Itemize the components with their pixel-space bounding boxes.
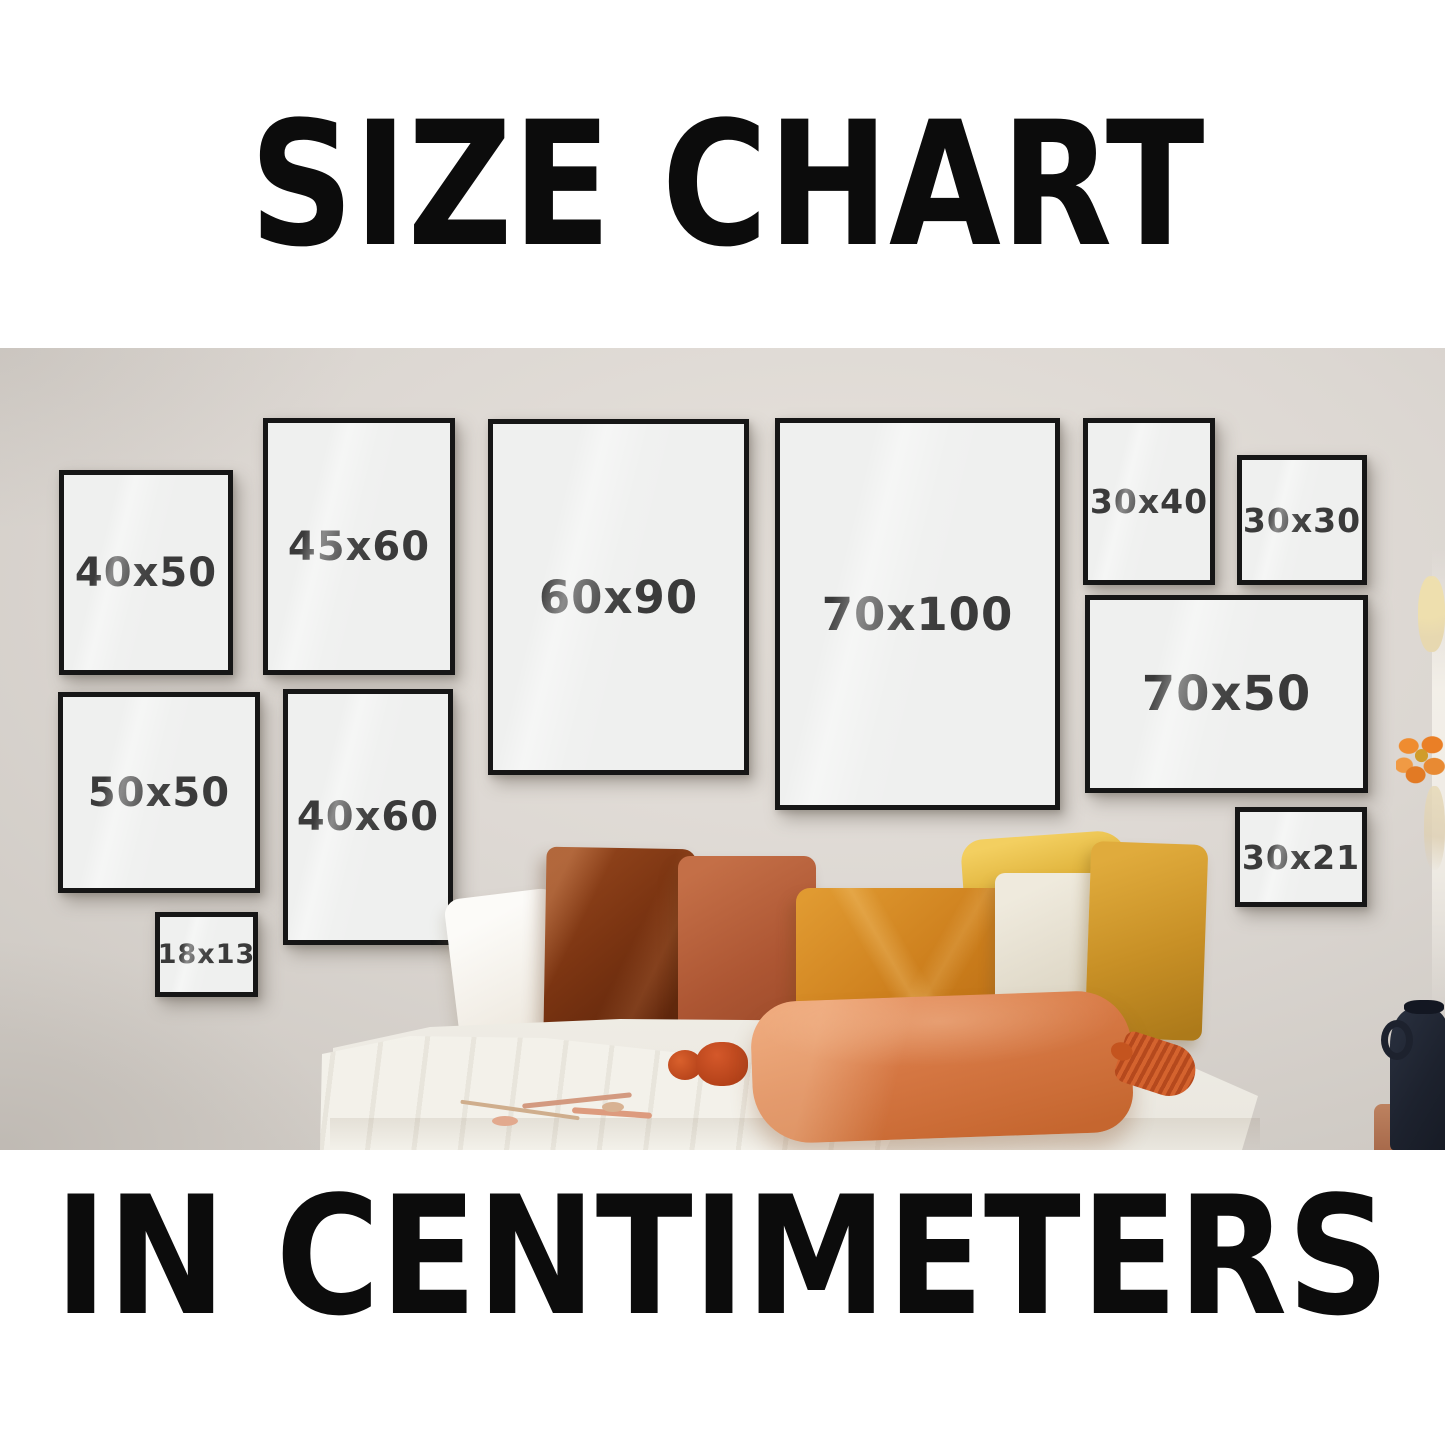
frame-40x60: 40x60: [283, 689, 453, 945]
size-chart-title: SIZE CHART: [0, 0, 1445, 348]
tassel-pom-left: [668, 1038, 758, 1098]
size-chart-poster: SIZE CHART 40x50 45x60 60x90 70x100 30x4…: [0, 0, 1445, 1445]
frame-60x90: 60x90: [488, 419, 749, 775]
frame-70x100: 70x100: [775, 418, 1060, 810]
frame-40x50-label: 40x50: [75, 550, 217, 596]
frame-30x40-label: 30x40: [1090, 482, 1208, 521]
frame-40x50: 40x50: [59, 470, 233, 675]
orange-flower: [1396, 728, 1445, 788]
frame-60x90-label: 60x90: [539, 571, 698, 624]
frame-45x60: 45x60: [263, 418, 455, 675]
pillow-front-orange: [750, 989, 1135, 1144]
frame-70x50: 70x50: [1085, 595, 1368, 793]
frame-50x50: 50x50: [58, 692, 260, 893]
frame-18x13-label: 18x13: [158, 939, 256, 970]
frame-70x50-label: 70x50: [1142, 666, 1312, 722]
dried-stem: [1424, 786, 1445, 870]
frame-70x100-label: 70x100: [822, 588, 1014, 641]
top-headline-band: SIZE CHART: [0, 0, 1445, 348]
frame-30x21: 30x21: [1235, 807, 1367, 907]
in-centimeters-title: IN CENTIMETERS: [0, 1150, 1445, 1445]
bottom-headline-band: IN CENTIMETERS: [0, 1150, 1445, 1445]
dried-flower-pale: [1418, 576, 1445, 652]
frame-30x30: 30x30: [1237, 455, 1367, 585]
in-centimeters-title-text: IN CENTIMETERS: [55, 1161, 1390, 1352]
frame-50x50-label: 50x50: [88, 770, 230, 816]
frame-45x60-label: 45x60: [288, 524, 430, 570]
size-chart-title-text: SIZE CHART: [250, 84, 1205, 285]
frame-30x30-label: 30x30: [1243, 501, 1361, 540]
bedroom-photo: 40x50 45x60 60x90 70x100 30x40 30x30 50x…: [0, 348, 1445, 1150]
frame-30x21-label: 30x21: [1242, 838, 1360, 877]
frame-30x40: 30x40: [1083, 418, 1215, 585]
dried-flower-sprig: [452, 1080, 662, 1140]
pillow-rust-velvet: [543, 847, 696, 1038]
dark-vase: [1390, 1008, 1445, 1150]
frame-40x60-label: 40x60: [297, 794, 439, 840]
frame-18x13: 18x13: [155, 912, 258, 997]
